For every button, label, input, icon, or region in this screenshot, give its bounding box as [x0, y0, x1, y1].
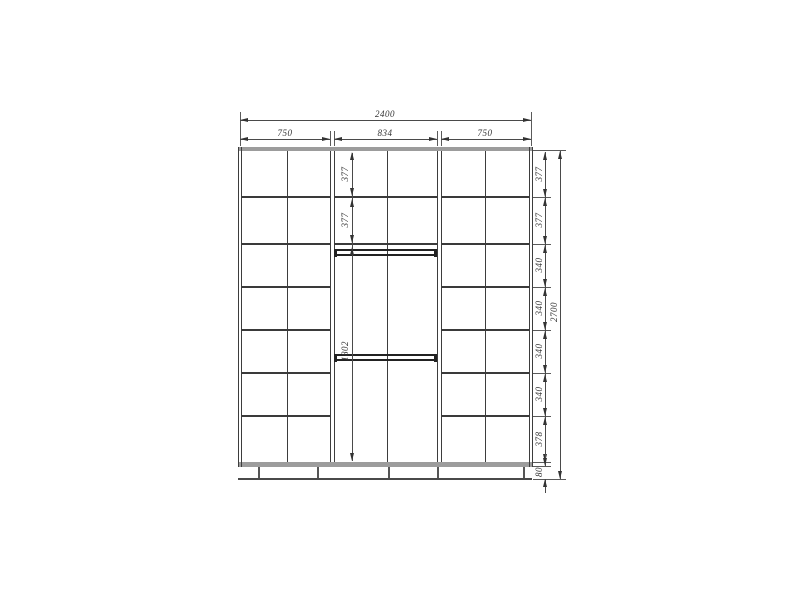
- shelf-line: [241, 329, 330, 331]
- dim-right-row-1: 377: [534, 167, 544, 182]
- arrow-icon: [543, 288, 547, 296]
- dim-middle-row-1: 377: [340, 167, 350, 182]
- arrow-icon: [350, 235, 354, 243]
- shelf-line: [334, 196, 437, 198]
- dim-right-section-width: 750: [478, 128, 493, 138]
- shelf-line: [441, 415, 529, 417]
- dim-middle-row-2: 377: [340, 213, 350, 228]
- dim-middle-section-width: 834: [378, 128, 393, 138]
- arrow-icon: [322, 137, 330, 141]
- dim-left-section-width: 750: [278, 128, 293, 138]
- dim-right-row-7: 378: [534, 432, 544, 447]
- dim-right-row-3: 340: [534, 258, 544, 273]
- divider-panel-left-line: [330, 151, 331, 462]
- shelf-line: [441, 372, 529, 374]
- side-panel-left-inner-line: [241, 147, 242, 467]
- arrow-icon: [240, 137, 248, 141]
- extension-line: [533, 416, 551, 417]
- arrow-icon: [543, 322, 547, 330]
- shelf-line: [334, 243, 437, 245]
- shelf-line: [441, 286, 529, 288]
- shelf-line: [241, 243, 330, 245]
- leg-line: [317, 467, 319, 478]
- rod-bracket: [434, 249, 437, 257]
- arrow-icon: [543, 189, 547, 197]
- dimension-line-overall-height: [560, 151, 561, 479]
- shelf-line: [241, 372, 330, 374]
- dim-plinth-height: 80: [534, 467, 544, 477]
- shelf-line: [241, 415, 330, 417]
- arrow-icon: [543, 245, 547, 253]
- arrow-icon: [334, 137, 342, 141]
- arrow-icon: [543, 408, 547, 416]
- extension-line: [437, 131, 438, 146]
- dim-right-row-2: 377: [534, 213, 544, 228]
- floor-line: [238, 478, 532, 480]
- arrow-icon: [543, 365, 547, 373]
- extension-line: [533, 373, 551, 374]
- shelf-line: [241, 286, 330, 288]
- arrow-icon: [543, 374, 547, 382]
- side-panel-right-inner-line: [529, 147, 530, 467]
- dim-middle-hanging-space: 1802: [340, 341, 350, 361]
- arrow-icon: [350, 199, 354, 207]
- extension-line: [533, 244, 551, 245]
- arrow-icon: [350, 152, 354, 160]
- arrow-icon: [543, 331, 547, 339]
- dim-right-row-5: 340: [534, 344, 544, 359]
- extension-line: [533, 479, 566, 480]
- arrow-icon: [543, 198, 547, 206]
- arrow-icon: [558, 471, 562, 479]
- technical-drawing-canvas: 2400 750 834 750 377 377 1802 37: [0, 0, 800, 600]
- leg-line: [258, 467, 260, 478]
- rod-bracket: [334, 249, 337, 257]
- dimension-line-overall-width: [240, 120, 531, 121]
- leg-line: [437, 467, 439, 478]
- arrow-icon: [350, 453, 354, 461]
- extension-line: [330, 131, 331, 146]
- dim-overall-width: 2400: [375, 109, 395, 119]
- dimension-line-right-section: [441, 139, 531, 140]
- arrow-icon: [558, 151, 562, 159]
- divider-panel-right-line: [437, 151, 438, 462]
- dim-right-row-6: 340: [534, 387, 544, 402]
- arrow-icon: [543, 279, 547, 287]
- top-panel-band: [238, 147, 532, 151]
- dimension-line-middle-section: [334, 139, 437, 140]
- dim-right-row-4: 340: [534, 301, 544, 316]
- side-panel-right-outer-line: [532, 147, 533, 467]
- arrow-icon: [543, 417, 547, 425]
- arrow-icon: [429, 137, 437, 141]
- arrow-icon: [240, 118, 248, 122]
- shelf-line: [441, 243, 529, 245]
- arrow-icon: [350, 247, 354, 255]
- rod-bracket: [334, 354, 337, 362]
- extension-line: [533, 330, 551, 331]
- arrow-icon: [543, 236, 547, 244]
- leg-line: [523, 467, 525, 478]
- dim-overall-height: 2700: [549, 302, 559, 322]
- arrow-icon: [350, 188, 354, 196]
- rod-bracket: [434, 354, 437, 362]
- shelf-line: [441, 329, 529, 331]
- arrow-icon: [523, 118, 531, 122]
- extension-line: [533, 287, 551, 288]
- leg-line: [388, 467, 390, 478]
- arrow-icon: [523, 137, 531, 141]
- arrow-icon: [543, 152, 547, 160]
- extension-line: [531, 112, 532, 146]
- extension-line: [533, 462, 551, 463]
- arrow-icon: [543, 458, 547, 466]
- shelf-line: [241, 196, 330, 198]
- arrow-icon: [441, 137, 449, 141]
- bottom-panel-band: [238, 462, 532, 467]
- arrow-icon: [543, 479, 547, 487]
- dimension-line-left-section: [240, 139, 330, 140]
- extension-line: [533, 197, 551, 198]
- side-panel-left-outer-line: [238, 147, 239, 467]
- shelf-line: [441, 196, 529, 198]
